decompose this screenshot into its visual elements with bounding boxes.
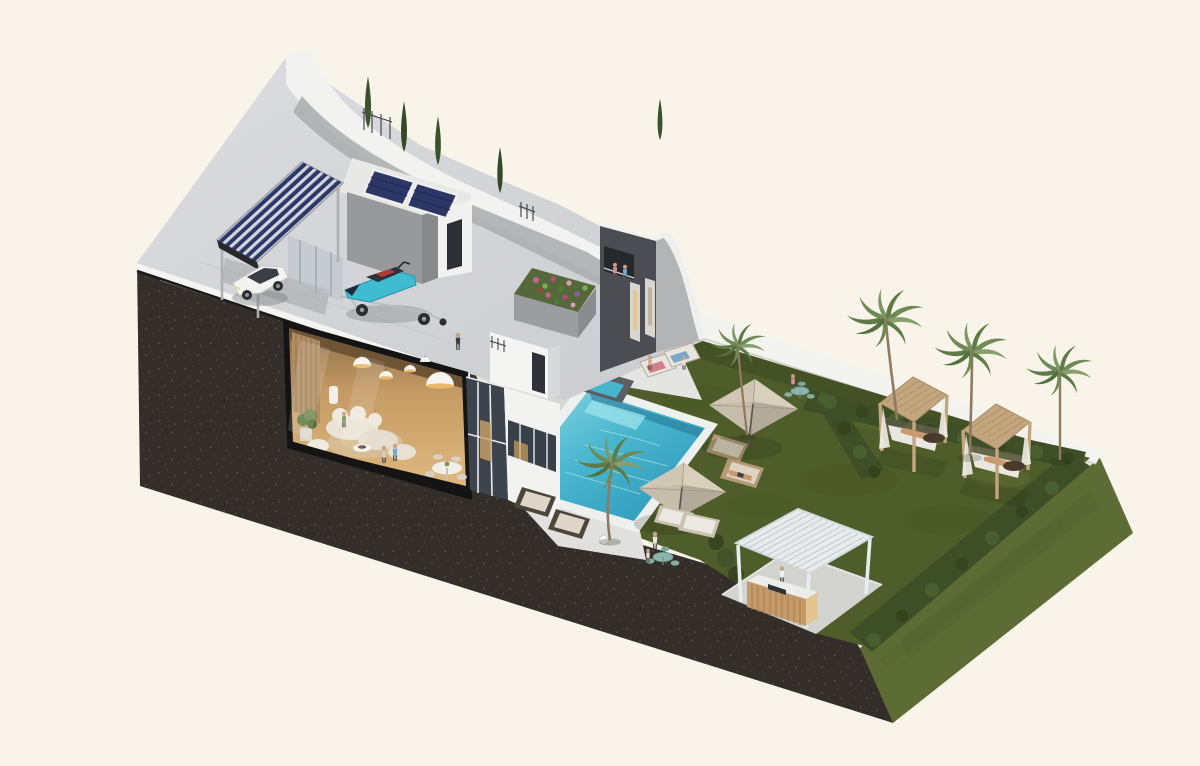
dark-tower <box>598 224 658 372</box>
villa-cutaway-render <box>0 0 1200 766</box>
render-canvas <box>0 0 1200 766</box>
glazed-stair-section <box>466 377 508 500</box>
floor-lamp <box>329 386 338 404</box>
